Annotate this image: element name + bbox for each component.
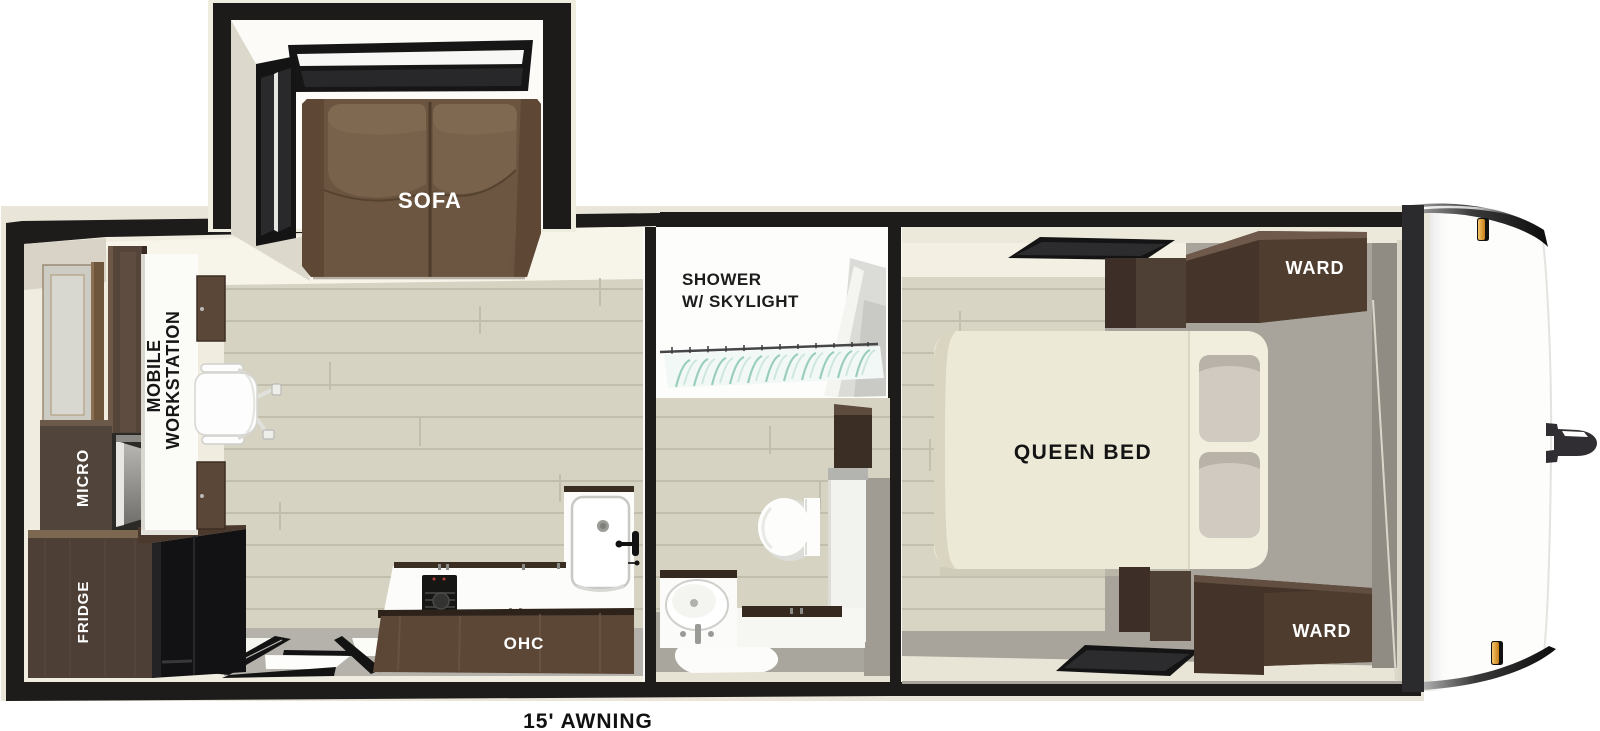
svg-text:QUEEN BED: QUEEN BED <box>1014 441 1152 464</box>
svg-text:15' AWNING: 15' AWNING <box>523 710 653 731</box>
svg-text:WORKSTATION: WORKSTATION <box>163 311 183 450</box>
svg-text:W/ SKYLIGHT: W/ SKYLIGHT <box>682 292 799 311</box>
svg-text:SOFA: SOFA <box>398 188 462 213</box>
svg-text:WARD: WARD <box>1286 258 1345 278</box>
svg-text:MOBILE: MOBILE <box>144 340 164 413</box>
svg-text:MICRO: MICRO <box>75 449 92 507</box>
svg-text:FRIDGE: FRIDGE <box>75 581 92 644</box>
svg-text:WARD: WARD <box>1293 621 1352 641</box>
svg-text:OHC: OHC <box>504 634 545 653</box>
svg-text:SHOWER: SHOWER <box>682 270 762 289</box>
